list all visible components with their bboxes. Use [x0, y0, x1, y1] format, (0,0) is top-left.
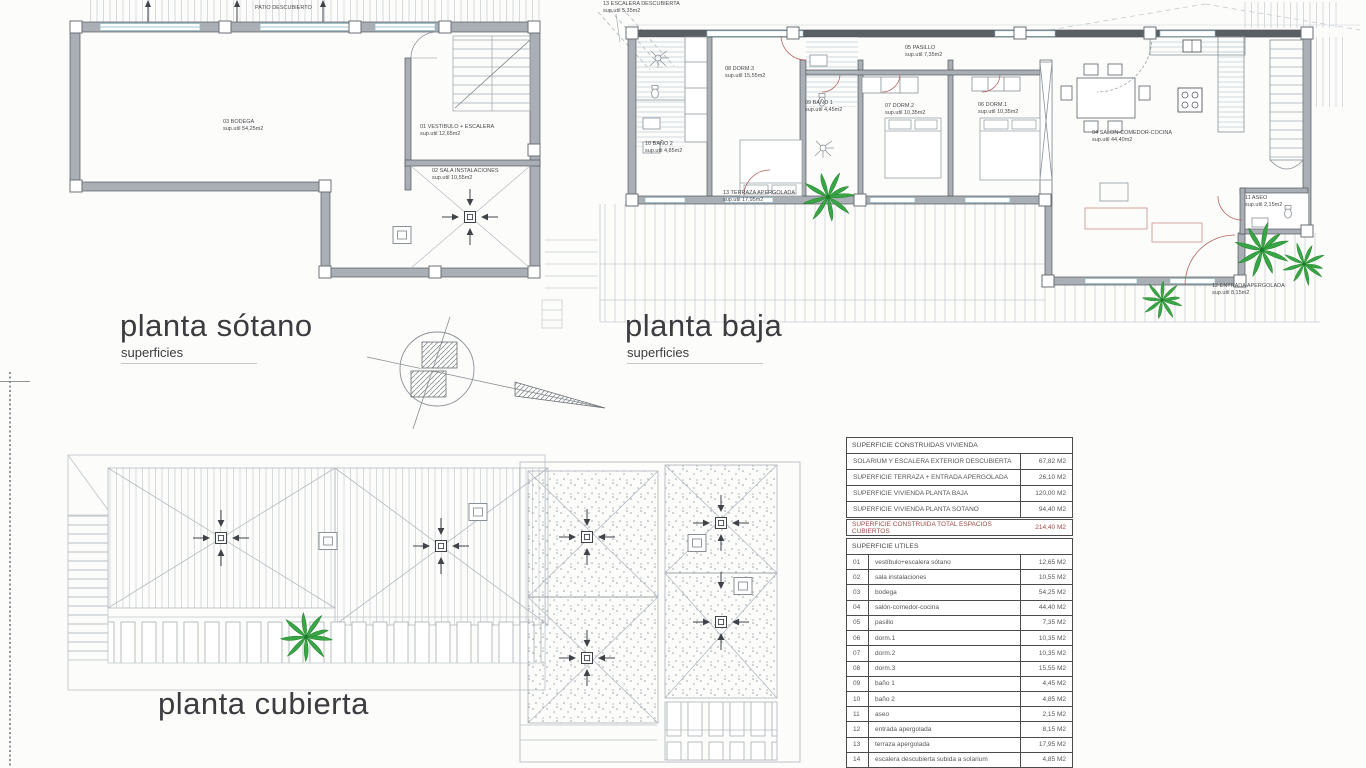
- row-num: 03: [847, 585, 869, 599]
- row-num: 01: [847, 555, 869, 569]
- table-row: SOLARIUM Y ESCALERA EXTERIOR DESCUBIERTA…: [847, 453, 1072, 469]
- room-name: 05 PASILLO: [905, 45, 942, 52]
- table-total-row: SUPERFICIE CONSTRUIDA TOTAL ESPACIOS CUB…: [846, 519, 1073, 536]
- row-num: 04: [847, 601, 869, 615]
- table-row: 05 pasillo 7,35 M2: [847, 615, 1072, 630]
- row-label: entrada apergolada: [869, 726, 1020, 733]
- sotano-stair: [453, 36, 530, 111]
- title-planta-baja: planta baja: [625, 308, 782, 344]
- north-arrow-symbol: [365, 315, 615, 433]
- row-label: baño 1: [869, 680, 1020, 687]
- row-num: 07: [847, 646, 869, 660]
- drain-icon: [716, 617, 727, 628]
- row-label: vestíbulo+escalera sótano: [869, 559, 1020, 566]
- row-label: dorm.1: [869, 635, 1020, 642]
- room-label-bodega: 03 BODEGA sup.util 54,25m2: [223, 119, 263, 133]
- room-label-aseo: 11 ASEO sup.util 2,15m2: [1245, 195, 1282, 209]
- room-area: sup.util 10,55m2: [432, 175, 499, 182]
- row-value: 10,35 M2: [1020, 646, 1072, 660]
- row-value: 26,10 M2: [1020, 470, 1072, 485]
- row-label: SUPERFICIE TERRAZA + ENTRADA APERGOLADA: [847, 474, 1020, 481]
- room-label-sala-instalaciones: 02 SALA INSTALACIONES sup.util 10,55m2: [432, 168, 499, 182]
- row-label: aseo: [869, 711, 1020, 718]
- room-name: 04 SALON-COMEDOR-COCINA: [1092, 130, 1172, 137]
- drain-icon: [465, 212, 476, 223]
- table-header: SUPERFICIE UTILES: [847, 539, 1072, 554]
- beds: [740, 118, 1040, 196]
- row-label: salón-comedor-cocina: [869, 604, 1020, 611]
- drain-icon: [582, 532, 593, 543]
- table-row: 03 bodega 54,25 M2: [847, 584, 1072, 599]
- room-label-escalera-descubierta: 13 ESCALERA DESCUBIERTA sup.util 5,35m2: [603, 1, 680, 15]
- room-area: sup.util 5,35m2: [603, 8, 680, 15]
- room-area: sup.util 4,85m2: [645, 148, 682, 155]
- table-row: 11 aseo 2,15 M2: [847, 706, 1072, 721]
- table-row: SUPERFICIE VIVIENDA PLANTA SOTANO 94,40 …: [847, 501, 1072, 517]
- table-row: SUPERFICIE VIVIENDA PLANTA BAJA 120,00 M…: [847, 485, 1072, 501]
- room-area: sup.util 8,15m2: [1212, 290, 1285, 297]
- drawing-sheet: PATIO DESCUBIERTO 03 BODEGA sup.util 54,…: [0, 0, 1366, 768]
- skylight-icon: [734, 578, 752, 595]
- room-area: sup.util 10,35m2: [885, 110, 925, 117]
- stipple-panel-left: [528, 471, 658, 723]
- table-row: 08 dorm.3 15,55 M2: [847, 661, 1072, 676]
- room-name: 07 DORM.2: [885, 103, 925, 110]
- room-label-terraza: 13 TERRAZA APERGOLADA sup.util 17,95m2: [723, 190, 795, 204]
- row-value: 67,82 M2: [1020, 454, 1072, 469]
- title-planta-cubierta: planta cubierta: [158, 686, 369, 722]
- skylight-icon: [469, 504, 487, 521]
- plan-sotano-drawing: [55, 0, 555, 310]
- room-label-dorm3: 08 DORM.3 sup.util 15,55m2: [725, 66, 765, 80]
- table-row: 04 salón-comedor-cocina 44,40 M2: [847, 600, 1072, 615]
- table-row: 06 dorm.1 10,35 M2: [847, 630, 1072, 645]
- drain-icon: [436, 541, 447, 552]
- row-value: 4,45 M2: [1020, 677, 1072, 691]
- dining-kitchen: [1061, 37, 1245, 132]
- room-area: sup.util 17,95m2: [723, 197, 795, 204]
- row-num: 12: [847, 722, 869, 736]
- terraza-hatch: [600, 204, 1045, 322]
- row-label: terraza apergolada: [869, 741, 1020, 748]
- row-label: baño 2: [869, 696, 1020, 703]
- row-value: 8,15 M2: [1020, 722, 1072, 736]
- room-name: 12 ENTRADA APERGOLADA: [1212, 283, 1285, 290]
- room-area: sup.util 12,65m2: [420, 131, 494, 138]
- room-name: 13 ESCALERA DESCUBIERTA: [603, 1, 680, 8]
- room-name: 13 TERRAZA APERGOLADA: [723, 190, 795, 197]
- room-label-salon: 04 SALON-COMEDOR-COCINA sup.util 44,40m2: [1092, 130, 1172, 144]
- room-area: sup.util 44,40m2: [1092, 137, 1172, 144]
- room-label-bano1: 09 BAÑO 1 sup.util 4,45m2: [805, 100, 842, 114]
- row-value: 17,95 M2: [1020, 738, 1072, 752]
- table-superficie-utiles: SUPERFICIE UTILES 01 vestíbulo+escalera …: [846, 538, 1073, 768]
- drain-icon: [216, 533, 227, 544]
- row-num: 11: [847, 707, 869, 721]
- room-name: 09 BAÑO 1: [805, 100, 842, 107]
- row-label: dorm.2: [869, 650, 1020, 657]
- row-num: 06: [847, 631, 869, 645]
- table-superficie-construidas: SUPERFICIE CONSTRUIDAS VIVIENDA SOLARIUM…: [846, 437, 1073, 518]
- room-area: sup.util 15,55m2: [725, 73, 765, 80]
- row-num: 02: [847, 570, 869, 584]
- row-value: 10,35 M2: [1020, 631, 1072, 645]
- room-name: 01 VESTIBULO + ESCALERA: [420, 124, 494, 131]
- pergola-right: [665, 702, 777, 760]
- row-label: escalera descubierta subida a solarium: [869, 756, 1020, 763]
- subtitle-baja-superficies: superficies: [627, 345, 763, 364]
- stipple-panel-right: [665, 465, 777, 698]
- row-value: 2,15 M2: [1020, 707, 1072, 721]
- toilet-icon: [1285, 206, 1292, 219]
- row-num: 05: [847, 616, 869, 630]
- room-name: 10 BAÑO 2: [645, 141, 682, 148]
- interior-stair: [1270, 40, 1303, 169]
- row-num: 10: [847, 692, 869, 706]
- row-num: 14: [847, 753, 869, 767]
- row-num: 08: [847, 662, 869, 676]
- room-area: sup.util 54,25m2: [223, 126, 263, 133]
- total-label: SUPERFICIE CONSTRUIDA TOTAL ESPACIOS CUB…: [847, 521, 1010, 535]
- row-num: 09: [847, 677, 869, 691]
- sofa-set: [1085, 183, 1202, 242]
- row-value: 4,85 M2: [1020, 692, 1072, 706]
- room-name: 02 SALA INSTALACIONES: [432, 168, 499, 175]
- table-header: SUPERFICIE CONSTRUIDAS VIVIENDA: [847, 438, 1072, 453]
- row-value: 4,85 M2: [1020, 753, 1072, 767]
- sotano-windows: [100, 24, 435, 31]
- table-row: 09 baño 1 4,45 M2: [847, 676, 1072, 691]
- room-label-vestibulo: 01 VESTIBULO + ESCALERA sup.util 12,65m2: [420, 124, 494, 138]
- row-value: 15,55 M2: [1020, 662, 1072, 676]
- row-label: pasillo: [869, 619, 1020, 626]
- row-label: SUPERFICIE VIVIENDA PLANTA BAJA: [847, 490, 1020, 497]
- room-name: 06 DORM.1: [978, 102, 1018, 109]
- room-area: sup.util 2,15m2: [1245, 202, 1282, 209]
- room-name: 03 BODEGA: [223, 119, 263, 126]
- roof-panel-b: [319, 468, 548, 625]
- row-value: 120,00 M2: [1020, 486, 1072, 501]
- total-value: 214,40 M2: [1010, 524, 1072, 531]
- room-area: sup.util 4,45m2: [805, 107, 842, 114]
- toilet-icon: [652, 86, 659, 99]
- room-label-bano2: 10 BAÑO 2 sup.util 4,85m2: [645, 141, 682, 155]
- roof-panel-a: [108, 468, 335, 608]
- row-value: 12,65 M2: [1020, 555, 1072, 569]
- row-label: dorm.3: [869, 665, 1020, 672]
- margin-vertical-text: [9, 372, 11, 768]
- room-label-dorm2: 07 DORM.2 sup.util 10,35m2: [885, 103, 925, 117]
- room-name: 08 DORM.3: [725, 66, 765, 73]
- shower-icon: [815, 141, 834, 158]
- drain-icon: [582, 653, 593, 664]
- table-row: 12 entrada apergolada 8,15 M2: [847, 721, 1072, 736]
- row-num: 13: [847, 738, 869, 752]
- table-row: 02 sala instalaciones 10,55 M2: [847, 569, 1072, 584]
- patio-hatch: [85, 0, 540, 22]
- room-name: 11 ASEO: [1245, 195, 1282, 202]
- skylight-icon: [688, 535, 706, 552]
- room-area: sup.util 7,35m2: [905, 52, 942, 59]
- drain-icon: [716, 518, 727, 529]
- row-label: SOLARIUM Y ESCALERA EXTERIOR DESCUBIERTA: [847, 458, 1020, 465]
- cubierta-stair: [68, 515, 108, 660]
- row-value: 10,55 M2: [1020, 570, 1072, 584]
- table-row: 14 escalera descubierta subida a solariu…: [847, 752, 1072, 767]
- row-value: 44,40 M2: [1020, 601, 1072, 615]
- table-row: 13 terraza apergolada 17,95 M2: [847, 737, 1072, 752]
- row-label: sala instalaciones: [869, 574, 1020, 581]
- title-planta-sotano: planta sótano: [120, 308, 313, 344]
- row-value: 7,35 M2: [1020, 616, 1072, 630]
- subtitle-sotano-superficies: superficies: [121, 345, 257, 364]
- table-row: 01 vestíbulo+escalera sótano 12,65 M2: [847, 554, 1072, 569]
- sotano-door-arc: [411, 32, 437, 58]
- table-row: SUPERFICIE TERRAZA + ENTRADA APERGOLADA …: [847, 469, 1072, 485]
- row-label: bodega: [869, 589, 1020, 596]
- room-label-pasillo: 05 PASILLO sup.util 7,35m2: [905, 45, 942, 59]
- room-label-dorm1: 06 DORM.1 sup.util 10,35m2: [978, 102, 1018, 116]
- room-label-entrada: 12 ENTRADA APERGOLADA sup.util 8,15m2: [1212, 283, 1285, 297]
- row-value: 94,40 M2: [1020, 502, 1072, 517]
- room-area: sup.util 10,35m2: [978, 109, 1018, 116]
- row-label: SUPERFICIE VIVIENDA PLANTA SOTANO: [847, 506, 1020, 513]
- row-value: 54,25 M2: [1020, 585, 1072, 599]
- floor-box-icon: [393, 227, 411, 244]
- skylight-icon: [319, 533, 337, 550]
- label-patio-descubierto: PATIO DESCUBIERTO: [255, 5, 312, 12]
- table-row: 10 baño 2 4,85 M2: [847, 691, 1072, 706]
- table-row: 07 dorm.2 10,35 M2: [847, 645, 1072, 660]
- margin-tick-line: [0, 381, 30, 382]
